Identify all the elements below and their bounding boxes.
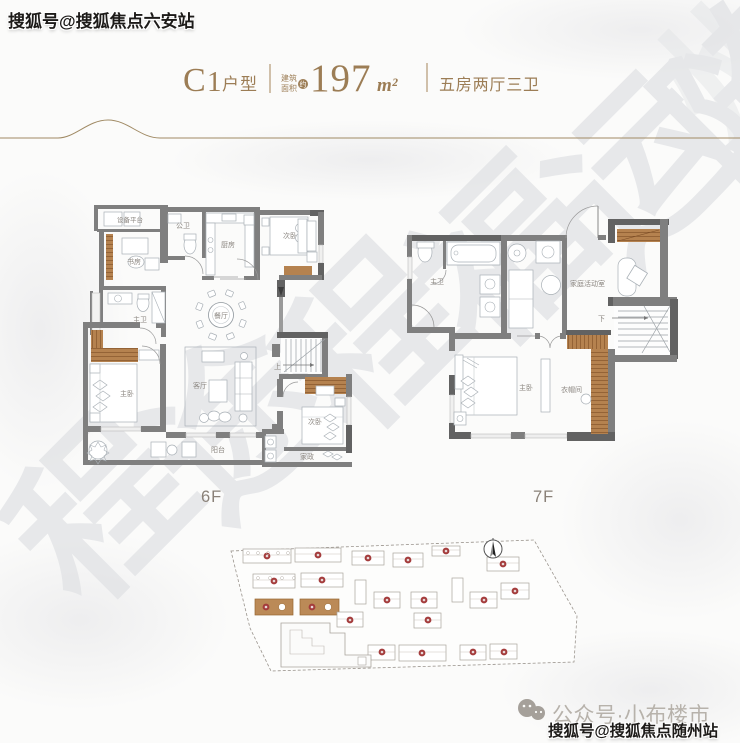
svg-text:阳台: 阳台 <box>211 445 225 454</box>
svg-text:197: 197 <box>310 57 372 100</box>
svg-text:约: 约 <box>300 80 307 89</box>
svg-text:上: 上 <box>274 362 281 371</box>
svg-text:衣帽间: 衣帽间 <box>561 385 582 394</box>
svg-text:6F: 6F <box>201 488 222 506</box>
svg-text:户型: 户型 <box>222 75 258 94</box>
svg-text:主卫: 主卫 <box>133 315 147 324</box>
svg-text:客厅: 客厅 <box>193 381 207 390</box>
svg-text:面积: 面积 <box>281 83 297 93</box>
svg-text:家政: 家政 <box>300 452 314 461</box>
svg-text:建筑: 建筑 <box>281 73 297 83</box>
svg-text:次卧: 次卧 <box>308 417 322 426</box>
svg-text:m²: m² <box>377 75 399 96</box>
svg-text:下: 下 <box>598 315 605 323</box>
svg-text:主卧: 主卧 <box>120 389 134 398</box>
svg-text:次卧: 次卧 <box>283 231 297 240</box>
svg-text:公卫: 公卫 <box>176 222 190 230</box>
svg-text:主卧: 主卧 <box>519 383 533 392</box>
svg-text:设备平台: 设备平台 <box>117 215 143 224</box>
svg-text:五房两厅三卫: 五房两厅三卫 <box>439 76 540 94</box>
svg-text:1: 1 <box>207 66 222 98</box>
svg-text:厨房: 厨房 <box>221 240 235 249</box>
svg-text:C: C <box>183 62 206 99</box>
svg-text:餐厅: 餐厅 <box>214 311 228 320</box>
svg-text:主卫: 主卫 <box>430 277 444 286</box>
svg-text:书房: 书房 <box>127 257 141 266</box>
svg-text:7F: 7F <box>533 488 554 506</box>
svg-text:家庭活动室: 家庭活动室 <box>570 279 605 288</box>
